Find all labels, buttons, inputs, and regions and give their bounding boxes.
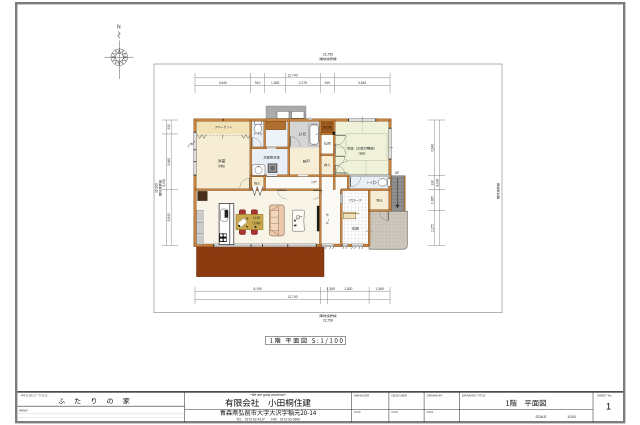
- svg-text:12,740: 12,740: [287, 295, 297, 299]
- svg-text:DESIGNER: DESIGNER: [391, 394, 408, 398]
- svg-text:MEMO: MEMO: [19, 409, 29, 413]
- svg-text:DATE: DATE: [391, 410, 398, 414]
- svg-text:910: 910: [167, 124, 171, 130]
- svg-text:3,640: 3,640: [358, 81, 366, 85]
- svg-text:U B: U B: [299, 131, 306, 136]
- svg-text:8,190: 8,190: [254, 287, 262, 291]
- svg-text:910: 910: [325, 81, 331, 85]
- svg-text:3,640: 3,640: [167, 158, 171, 166]
- svg-text:22,750: 22,750: [323, 319, 333, 323]
- svg-text:910: 910: [431, 180, 435, 186]
- svg-text:2,275: 2,275: [431, 224, 435, 232]
- svg-text:1,365: 1,365: [327, 287, 335, 291]
- svg-text:DRAWN BY: DRAWN BY: [427, 394, 443, 398]
- svg-text:1,365: 1,365: [271, 81, 279, 85]
- svg-text:2,275: 2,275: [299, 81, 307, 85]
- svg-text:1,820: 1,820: [344, 287, 352, 291]
- svg-text:N: N: [117, 25, 121, 31]
- svg-text:22,750: 22,750: [323, 53, 333, 57]
- svg-text:1,365: 1,365: [431, 196, 435, 204]
- svg-text:DRAWING TITLE: DRAWING TITLE: [462, 394, 485, 398]
- svg-text:UP: UP: [395, 171, 399, 175]
- svg-text:LDK: LDK: [253, 216, 261, 220]
- svg-text:12,740: 12,740: [287, 73, 297, 77]
- svg-text:SHEET No: SHEET No: [597, 394, 612, 398]
- svg-text:1: 1: [606, 402, 611, 413]
- svg-text:DATE: DATE: [427, 410, 434, 414]
- svg-text:SCALE: SCALE: [535, 415, 547, 419]
- svg-text:DATE: DATE: [354, 410, 361, 414]
- svg-text:3,640: 3,640: [431, 144, 435, 152]
- svg-text:15,100: 15,100: [155, 183, 159, 193]
- svg-text:~We are good workman~: ~We are good workman~: [250, 393, 287, 397]
- svg-text:8,190: 8,190: [162, 178, 166, 186]
- svg-text:PROJECT TITLE: PROJECT TITLE: [21, 394, 48, 398]
- svg-text:3,640: 3,640: [167, 213, 171, 221]
- svg-text:3,640: 3,640: [219, 81, 227, 85]
- svg-text:910: 910: [255, 81, 261, 85]
- svg-text:8,190: 8,190: [436, 178, 440, 186]
- svg-text:MANAGER: MANAGER: [354, 394, 370, 398]
- svg-text:1,365: 1,365: [375, 287, 383, 291]
- svg-text:1/100: 1/100: [567, 415, 576, 419]
